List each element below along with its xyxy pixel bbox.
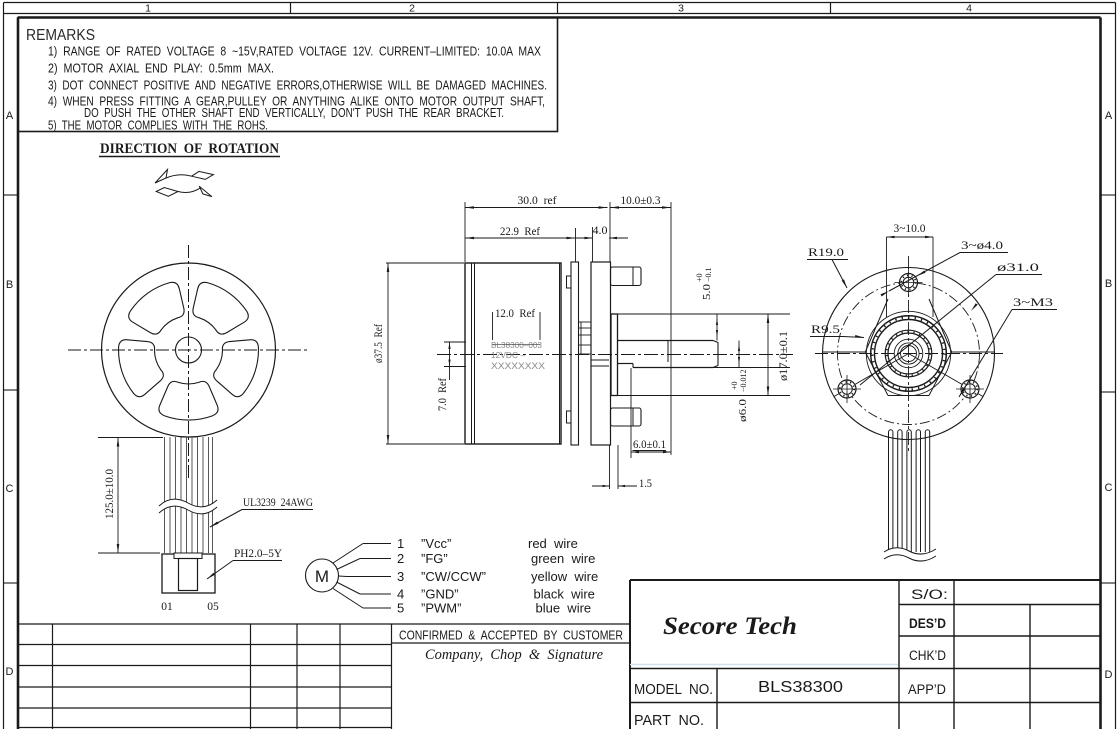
svg-text:CONFIRMED & ACCEPTED BY CU: CONFIRMED & ACCEPTED BY CUSTOMER bbox=[399, 629, 623, 643]
svg-text:01: 01 bbox=[161, 601, 173, 613]
svg-text:ø17.0±0.1: ø17.0±0.1 bbox=[778, 331, 790, 381]
svg-text:”Vcc”: ”Vcc” bbox=[421, 536, 451, 551]
svg-text:PH2.0–5Y: PH2.0–5Y bbox=[234, 548, 283, 560]
svg-text:3~ø4.0: 3~ø4.0 bbox=[961, 238, 1003, 252]
svg-text:4: 4 bbox=[966, 3, 972, 15]
svg-text:5.0: 5.0 bbox=[701, 283, 713, 300]
svg-text:B: B bbox=[1105, 278, 1112, 290]
svg-text:R9.5: R9.5 bbox=[811, 322, 840, 336]
svg-text:3: 3 bbox=[678, 3, 684, 15]
svg-text:MODEL NO.: MODEL NO. bbox=[634, 681, 713, 698]
svg-text:blue wire: blue wire bbox=[536, 601, 592, 616]
svg-text:3~M3: 3~M3 bbox=[1013, 295, 1053, 309]
svg-text:A: A bbox=[1105, 110, 1113, 122]
svg-text:1.5: 1.5 bbox=[639, 478, 652, 490]
svg-text:+0: +0 bbox=[695, 273, 704, 282]
svg-text:5) THE MOTOR COMPLIES WITH: 5) THE MOTOR COMPLIES WITH THE ROHS. bbox=[48, 119, 268, 133]
svg-text:−0.1: −0.1 bbox=[704, 267, 713, 282]
svg-text:red wire: red wire bbox=[528, 536, 578, 551]
svg-text:XXXXXXXX: XXXXXXXX bbox=[491, 361, 545, 371]
svg-text:22.9 Ref: 22.9 Ref bbox=[500, 224, 540, 238]
svg-text:REMARKS: REMARKS bbox=[26, 27, 95, 44]
svg-text:”PWM”: ”PWM” bbox=[421, 601, 461, 616]
svg-text:3~10.0: 3~10.0 bbox=[894, 223, 926, 235]
svg-text:BLS38300: BLS38300 bbox=[758, 679, 843, 696]
svg-text:2: 2 bbox=[409, 3, 415, 15]
svg-text:2) MOTOR AXIAL END PLAY:: 2) MOTOR AXIAL END PLAY: 0.5mm MAX. bbox=[48, 62, 274, 76]
svg-text:12VDC –: 12VDC – bbox=[491, 350, 525, 360]
svg-text:S/O:: S/O: bbox=[911, 587, 948, 602]
svg-text:D: D bbox=[1105, 669, 1113, 681]
svg-text:30.0 ref: 30.0 ref bbox=[518, 193, 557, 207]
svg-text:4.0: 4.0 bbox=[593, 223, 608, 237]
svg-text:”GND”: ”GND” bbox=[421, 587, 459, 602]
svg-text:3) DOT CONNECT POSITIVE AN: 3) DOT CONNECT POSITIVE AND NEGATIVE ERR… bbox=[48, 79, 547, 93]
svg-text:ø6.0: ø6.0 bbox=[737, 398, 749, 422]
svg-text:DIRECTION OF ROTATION: DIRECTION OF ROTATION bbox=[100, 141, 279, 157]
svg-text:4: 4 bbox=[397, 587, 404, 602]
svg-text:UL3239 24AWG: UL3239 24AWG bbox=[243, 497, 313, 509]
svg-text:6.0±0.1: 6.0±0.1 bbox=[633, 439, 666, 451]
svg-text:05: 05 bbox=[207, 601, 219, 613]
svg-text:−0.012: −0.012 bbox=[739, 369, 748, 392]
svg-text:C: C bbox=[1105, 482, 1113, 494]
svg-text:3: 3 bbox=[397, 569, 404, 584]
svg-text:1) RANGE OF RATED VOLTAGE: 1) RANGE OF RATED VOLTAGE 8 ~15V,RATED V… bbox=[48, 45, 542, 59]
svg-text:APP’D: APP’D bbox=[908, 682, 946, 697]
svg-text:B: B bbox=[6, 279, 13, 291]
svg-text:black wire: black wire bbox=[534, 587, 595, 602]
svg-text:1: 1 bbox=[145, 3, 151, 15]
svg-text:7.0 Ref: 7.0 Ref bbox=[437, 378, 449, 411]
svg-text:5: 5 bbox=[397, 601, 404, 616]
svg-text:ø37.5 Ref: ø37.5 Ref bbox=[373, 324, 385, 363]
svg-text:BL38300–003: BL38300–003 bbox=[491, 340, 542, 350]
svg-text:green wire: green wire bbox=[531, 551, 595, 566]
svg-text:Secore Tech: Secore Tech bbox=[663, 613, 797, 640]
svg-text:A: A bbox=[6, 110, 14, 122]
svg-text:+0: +0 bbox=[730, 381, 739, 390]
svg-text:yellow wire: yellow wire bbox=[531, 569, 598, 584]
svg-text:DES’D: DES’D bbox=[909, 616, 946, 631]
svg-text:12.0 Ref: 12.0 Ref bbox=[495, 308, 535, 320]
svg-text:125.0±10.0: 125.0±10.0 bbox=[104, 469, 116, 519]
svg-text:CHK’D: CHK’D bbox=[909, 648, 946, 663]
svg-text:R19.0: R19.0 bbox=[808, 245, 844, 259]
svg-text:M: M bbox=[315, 567, 329, 586]
svg-text:D: D bbox=[6, 666, 14, 678]
svg-text:Company, Chop & Signature: Company, Chop & Signature bbox=[425, 647, 604, 663]
svg-text:1: 1 bbox=[397, 536, 404, 551]
svg-text:PART NO.: PART NO. bbox=[634, 712, 704, 729]
svg-text:ø31.0: ø31.0 bbox=[997, 260, 1039, 274]
svg-text:”CW/CCW”: ”CW/CCW” bbox=[421, 569, 486, 584]
svg-text:”FG”: ”FG” bbox=[421, 551, 448, 566]
svg-text:10.0±0.3: 10.0±0.3 bbox=[621, 193, 661, 207]
svg-text:C: C bbox=[6, 483, 14, 495]
svg-text:2: 2 bbox=[397, 551, 404, 566]
